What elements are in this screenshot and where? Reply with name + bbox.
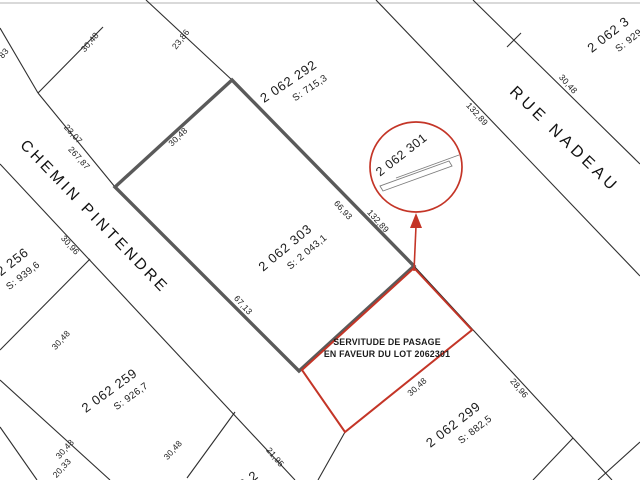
servitude-text-line2: EN FAVEUR DU LOT 2062301 (324, 349, 450, 359)
servitude-text-line1: SERVITUDE DE PASAGE (333, 337, 441, 347)
cadastral-plan: CHEMIN PINTENDRE RUE NADEAU 2 062 292 S:… (0, 0, 640, 480)
